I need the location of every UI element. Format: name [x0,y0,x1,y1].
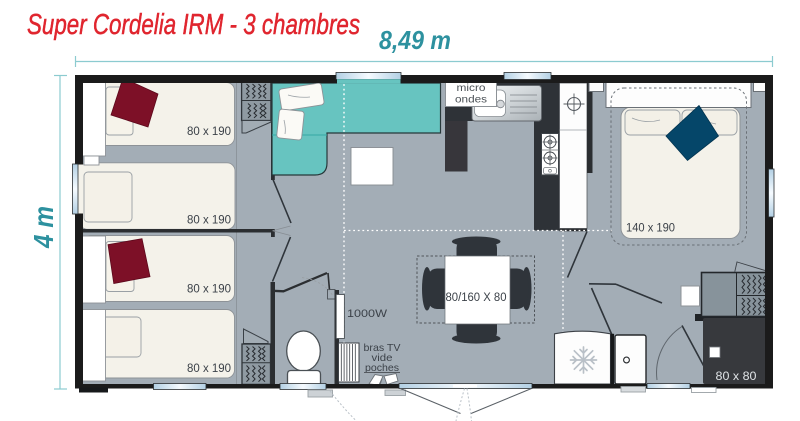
svg-text:micro: micro [457,82,486,94]
svg-text:80 x 190: 80 x 190 [187,213,231,227]
svg-text:80 x 190: 80 x 190 [187,282,231,296]
svg-text:ondes: ondes [455,94,487,106]
svg-text:Super Cordelia IRM - 3 chambre: Super Cordelia IRM - 3 chambres [27,9,360,41]
svg-text:1000W: 1000W [347,308,388,320]
svg-text:80/160 X 80: 80/160 X 80 [446,292,507,304]
svg-text:80 x 80: 80 x 80 [716,371,757,383]
svg-text:80 x 190: 80 x 190 [187,124,231,138]
svg-text:4 m: 4 m [28,206,59,249]
svg-text:140 x 190: 140 x 190 [626,223,675,235]
svg-text:80 x 190: 80 x 190 [187,361,231,375]
svg-text:8,49 m: 8,49 m [379,25,451,55]
